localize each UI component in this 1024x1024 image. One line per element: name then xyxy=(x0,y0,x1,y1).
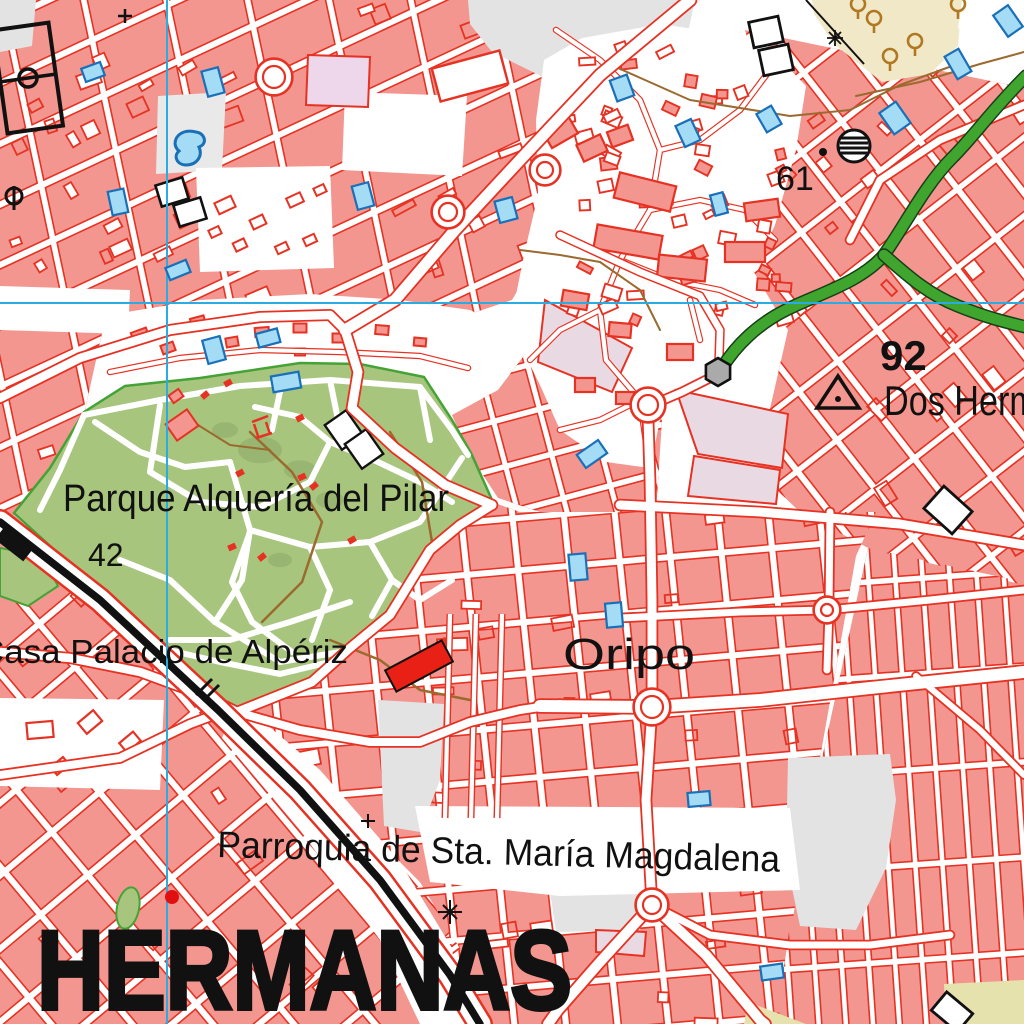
svg-text:Dos Hermanas: Dos Hermanas xyxy=(884,377,1024,424)
svg-text:Parque Alquería del Pilar: Parque Alquería del Pilar xyxy=(63,478,449,520)
svg-text:Casa Palacio de Alpériz: Casa Palacio de Alpériz xyxy=(0,633,348,670)
svg-text:Oripo: Oripo xyxy=(563,630,695,679)
svg-text:92: 92 xyxy=(880,332,927,379)
svg-text:HERMANAS: HERMANAS xyxy=(37,908,572,1024)
svg-text:61: 61 xyxy=(776,160,814,198)
svg-text:42: 42 xyxy=(88,537,124,573)
